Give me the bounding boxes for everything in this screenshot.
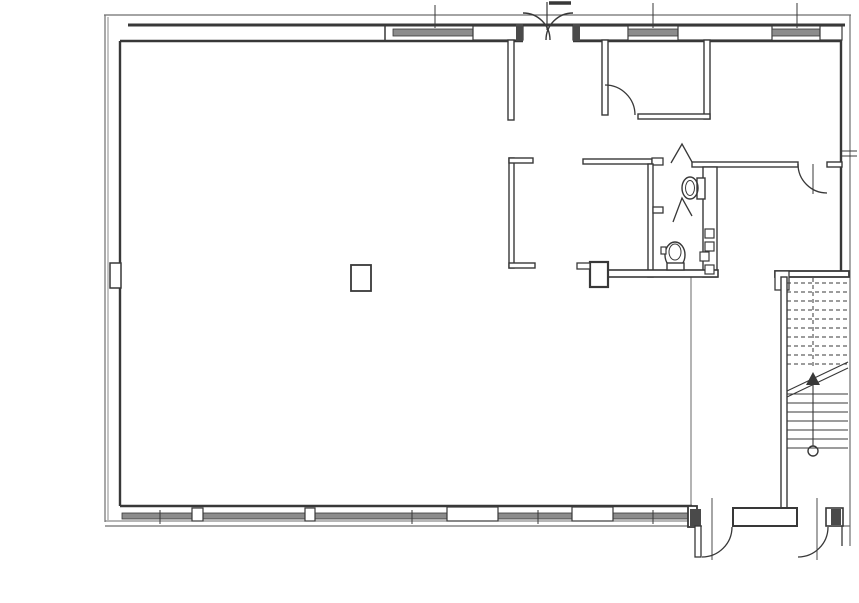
west-wall-column [110,263,121,288]
entry-door-jamb [573,24,580,41]
corridor-south-wall [583,159,652,164]
wall-pier [447,507,498,521]
entry-door-jamb [516,24,523,41]
exit-center-pier [733,508,797,526]
window-strip [628,29,678,36]
window-strip [122,513,192,519]
toilet-bowl-inner [686,181,695,196]
toilet-tank [667,263,684,270]
wall-pier [305,508,315,521]
hall-partition-wall [602,40,608,115]
restroom-entry-arm [577,263,590,269]
hall-door-swing-arc [605,85,635,115]
exit-east-jamb-fill [831,509,841,525]
wall-pier [573,26,628,40]
stall-door-open-leaf [673,198,692,222]
office-partition-wall [704,40,710,119]
window-strip [613,513,688,519]
stair-west-wall [781,277,787,508]
stall-stub-wall [653,207,663,213]
chase-fixture-box [705,229,714,238]
toilet-flush-valve [661,247,666,254]
wall-pier [820,26,842,40]
window-strip [203,513,305,519]
shaft-wall-top-flange [509,158,533,163]
toilet-bowl-inner [669,244,681,260]
wall-pier [572,507,613,521]
chase-fixture-box [705,265,714,274]
floor-plan-drawing [0,0,859,603]
exit-door-jamb [690,509,701,526]
window-strip [315,513,447,519]
chase-fixture-box [705,242,714,251]
floor-plan-page [0,0,859,603]
east-room-north-wall-pier [827,162,842,167]
vestibule-partition-wall [508,40,514,120]
east-room-north-wall [692,162,798,167]
stall-door-open-leaf [671,144,692,163]
exit-door-swing-arc [702,527,732,557]
window-strip [498,513,572,519]
wall-pier [678,26,772,40]
window-strip [772,29,820,36]
restroom-entry-pier [590,262,608,287]
chase-fixture-box [700,252,709,261]
wall-pier [192,508,203,521]
stair-break-line [787,362,848,391]
free-standing-column [351,265,371,291]
office-south-wall [638,114,710,119]
shaft-wall-bottom-flange [509,263,535,268]
exit-door-swing-arc [798,527,828,557]
restroom-west-wall [648,164,653,277]
exit-wing-wall [695,526,701,557]
shaft-wall-vertical [509,158,514,268]
window-strip [393,29,473,36]
wall-pier [473,26,523,40]
restroom-south-wall [608,270,718,277]
